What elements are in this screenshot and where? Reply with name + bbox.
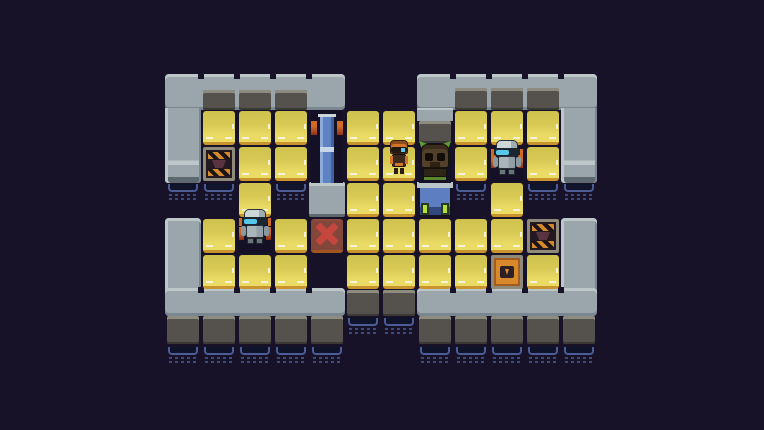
tile-floor — [275, 111, 307, 145]
tile-highlight — [441, 245, 448, 247]
water-cup — [312, 347, 342, 355]
platform-notch — [234, 73, 240, 79]
water-dots — [277, 357, 305, 359]
tile-floor — [527, 111, 559, 145]
tile-highlight — [304, 232, 306, 237]
water-cup — [276, 184, 306, 192]
platform-notch — [198, 73, 204, 79]
water-dots — [565, 194, 593, 196]
tile-floor — [347, 219, 379, 253]
tile-highlight — [242, 137, 249, 139]
water-dots — [529, 357, 557, 359]
tile-highlight — [458, 173, 465, 175]
tile-highlight — [520, 232, 522, 237]
water-dots — [169, 361, 197, 363]
game-stage[interactable] — [0, 0, 764, 430]
tile-highlight — [405, 281, 412, 283]
door-light-band — [320, 147, 334, 152]
gray-robot-bottom — [239, 207, 271, 245]
tile-highlight — [376, 268, 378, 273]
tile-floor — [347, 183, 379, 217]
water-dots — [529, 361, 557, 363]
hazard-stripe — [532, 224, 554, 231]
platform-face — [167, 316, 199, 344]
robot-leg — [394, 168, 398, 174]
tile-highlight — [549, 137, 556, 139]
platform-face — [527, 88, 559, 110]
robot-visor-glow — [244, 219, 257, 224]
tile-highlight — [530, 173, 537, 175]
robot-shoulder — [264, 226, 269, 236]
tile-highlight — [405, 209, 412, 211]
tile-floor — [383, 219, 415, 253]
blue-door — [311, 110, 343, 183]
water-cup — [492, 347, 522, 355]
water-dots — [241, 361, 269, 363]
platform-face — [563, 316, 595, 344]
water-dots — [421, 361, 449, 363]
water-decoration — [420, 347, 450, 363]
robot-arm — [390, 156, 393, 164]
tile-highlight — [261, 137, 268, 139]
tile-highlight — [386, 245, 393, 247]
tile-floor — [239, 255, 271, 289]
tile-highlight — [297, 137, 304, 139]
creature-body — [423, 168, 447, 177]
tile-highlight — [225, 137, 232, 139]
bottom-right-wall — [561, 218, 597, 292]
robot-eye-glow — [401, 148, 405, 152]
water-dots — [565, 361, 593, 363]
water-cup — [420, 347, 450, 355]
water-dots — [277, 194, 305, 196]
tile-highlight — [458, 281, 465, 283]
tile-highlight — [376, 196, 378, 201]
tile-highlight — [556, 124, 558, 129]
water-decoration — [204, 184, 234, 200]
water-dots — [493, 361, 521, 363]
tile-highlight — [556, 268, 558, 273]
tile-dock — [417, 182, 453, 217]
platform-face — [527, 316, 559, 344]
water-dots — [241, 357, 269, 359]
platform-face — [347, 290, 379, 316]
water-decoration — [384, 318, 414, 334]
tile-highlight — [278, 137, 285, 139]
robot-body — [246, 225, 264, 238]
tile-highlight — [448, 268, 450, 273]
water-dots — [169, 198, 197, 200]
tile-highlight — [242, 173, 249, 175]
tile-floor — [275, 255, 307, 289]
platform-notch — [558, 73, 564, 79]
tile-highlight — [350, 209, 357, 211]
door-marker — [337, 121, 343, 135]
orange-robot — [388, 139, 410, 176]
tile-highlight — [549, 173, 556, 175]
water-decoration — [204, 347, 234, 363]
tile-highlight — [412, 268, 414, 273]
tile-highlight — [494, 245, 501, 247]
water-dots — [169, 194, 197, 196]
tile-floor — [203, 219, 235, 253]
tile-highlight — [225, 281, 232, 283]
tile-highlight — [206, 245, 213, 247]
robot-ear — [520, 149, 523, 157]
tile-highlight — [261, 281, 268, 283]
tile-highlight — [386, 281, 393, 283]
water-cup — [456, 347, 486, 355]
robot-leg — [499, 169, 506, 175]
water-decoration — [312, 347, 342, 363]
tile-highlight — [268, 160, 270, 165]
platform-notch — [486, 73, 492, 79]
tile-highlight — [350, 137, 357, 139]
water-dots — [169, 357, 197, 359]
tile-floor — [491, 219, 523, 253]
right-inner-wall-stub — [417, 108, 453, 121]
tile-floor — [203, 111, 235, 145]
crate-contents — [212, 160, 226, 168]
water-decoration — [276, 347, 306, 363]
platform-notch — [450, 73, 456, 79]
gray-robot-top — [491, 138, 523, 176]
tile-highlight — [422, 281, 429, 283]
tile-highlight — [441, 281, 448, 283]
water-decoration — [168, 347, 198, 363]
tile-highlight — [297, 245, 304, 247]
tile-target-x — [311, 219, 343, 253]
door-cap-highlight — [318, 114, 336, 117]
platform-notch — [306, 73, 312, 79]
platform-face — [239, 90, 271, 110]
water-cup — [348, 318, 378, 326]
robot-leg — [256, 238, 263, 244]
tile-highlight — [297, 173, 304, 175]
water-decoration — [564, 347, 594, 363]
water-decoration — [456, 347, 486, 363]
water-cup — [204, 184, 234, 192]
tile-highlight — [232, 268, 234, 273]
tile-highlight — [297, 281, 304, 283]
tile-door-cap — [309, 182, 345, 217]
platform-face — [455, 88, 487, 110]
tile-highlight — [448, 232, 450, 237]
water-cup — [564, 347, 594, 355]
hazard-stripe — [532, 241, 554, 248]
tile-highlight — [268, 124, 270, 129]
platform-face — [239, 316, 271, 344]
water-dots — [205, 357, 233, 359]
tile-floor — [455, 147, 487, 181]
robot-leg — [400, 168, 404, 174]
tile-crate-hazard — [527, 219, 559, 253]
tile-floor — [383, 183, 415, 217]
tile-floor — [275, 219, 307, 253]
platform-face — [275, 316, 307, 344]
tile-highlight — [261, 173, 268, 175]
tile-highlight — [242, 281, 249, 283]
tile-highlight — [412, 232, 414, 237]
robot-body — [498, 156, 516, 169]
water-decoration — [456, 184, 486, 200]
tile-highlight — [477, 137, 484, 139]
tile-floor — [419, 219, 451, 253]
tile-highlight — [412, 160, 414, 165]
water-dots — [565, 357, 593, 359]
water-decoration — [348, 318, 378, 334]
tile-highlight — [477, 173, 484, 175]
water-dots — [421, 357, 449, 359]
water-cup — [168, 184, 198, 192]
water-cup — [204, 347, 234, 355]
tile-highlight — [549, 281, 556, 283]
tile-highlight — [206, 281, 213, 283]
water-dots — [385, 332, 413, 334]
left-wall — [165, 108, 201, 183]
creature-feet — [424, 177, 446, 180]
tile-floor — [347, 111, 379, 145]
water-decoration — [240, 347, 270, 363]
bottom-left-wall — [165, 218, 201, 292]
robot-ear — [268, 218, 271, 226]
tile-floor — [455, 255, 487, 289]
tile-highlight — [376, 124, 378, 129]
tile-floor — [527, 255, 559, 289]
tile-highlight — [494, 209, 501, 211]
water-dots — [313, 361, 341, 363]
tile-highlight — [477, 245, 484, 247]
water-dots — [457, 357, 485, 359]
tile-highlight — [268, 196, 270, 201]
water-cup — [456, 184, 486, 192]
water-dots — [385, 328, 413, 330]
robot-leg — [247, 238, 254, 244]
tile-floor — [419, 255, 451, 289]
water-decoration — [528, 184, 558, 200]
hazard-stripe — [208, 169, 230, 176]
tile-highlight — [458, 137, 465, 139]
robot-arm — [405, 156, 408, 164]
platform-notch — [270, 73, 276, 79]
robot-shoulder — [516, 157, 521, 167]
water-dots — [529, 198, 557, 200]
creature — [418, 141, 452, 181]
water-dots — [529, 194, 557, 196]
door-marker — [311, 121, 317, 135]
platform-face — [383, 290, 415, 316]
water-cup — [384, 318, 414, 326]
tile-highlight — [304, 268, 306, 273]
tile-highlight — [520, 124, 522, 129]
tile-highlight — [513, 209, 520, 211]
water-cup — [564, 184, 594, 192]
platform-notch — [522, 73, 528, 79]
tile-highlight — [278, 245, 285, 247]
creature-eye — [425, 153, 433, 161]
crate-contents — [536, 232, 550, 240]
right-wall — [561, 108, 597, 183]
tile-highlight — [412, 124, 414, 129]
water-dots — [349, 328, 377, 330]
tile-highlight — [369, 281, 376, 283]
tile-floor — [203, 255, 235, 289]
tile-floor — [527, 147, 559, 181]
tile-highlight — [484, 160, 486, 165]
tile-highlight — [369, 173, 376, 175]
tile-highlight — [369, 209, 376, 211]
water-dots — [277, 361, 305, 363]
water-dots — [205, 361, 233, 363]
water-cup — [168, 347, 198, 355]
tile-highlight — [225, 245, 232, 247]
platform-face — [491, 316, 523, 344]
platform-face — [419, 121, 451, 143]
tile-highlight — [278, 281, 285, 283]
water-dots — [205, 194, 233, 196]
water-decoration — [564, 184, 594, 200]
water-cup — [276, 347, 306, 355]
tile-highlight — [376, 160, 378, 165]
water-dots — [565, 198, 593, 200]
water-dots — [457, 194, 485, 196]
tile-highlight — [369, 245, 376, 247]
tile-highlight — [422, 245, 429, 247]
water-dots — [457, 198, 485, 200]
platform-face — [455, 316, 487, 344]
tile-highlight — [268, 268, 270, 273]
tile-highlight — [278, 173, 285, 175]
bottom-left-platform — [165, 288, 345, 316]
tile-highlight — [350, 245, 357, 247]
dock-lamp — [421, 203, 429, 215]
tile-highlight — [520, 196, 522, 201]
tile-highlight — [405, 245, 412, 247]
tile-floor — [347, 255, 379, 289]
tile-highlight — [369, 137, 376, 139]
robot-belt — [395, 163, 403, 166]
platform-face — [311, 316, 343, 344]
water-decoration — [168, 184, 198, 200]
tile-crate-envelope — [491, 255, 523, 289]
water-cup — [528, 347, 558, 355]
robot-visor-glow — [496, 150, 509, 155]
tile-highlight — [530, 137, 537, 139]
water-decoration — [276, 184, 306, 200]
creature-eye — [437, 153, 445, 161]
tile-floor — [455, 111, 487, 145]
platform-face — [203, 90, 235, 110]
water-decoration — [528, 347, 558, 363]
tile-highlight — [350, 281, 357, 283]
tile-highlight — [530, 281, 537, 283]
tile-highlight — [556, 160, 558, 165]
water-cup — [528, 184, 558, 192]
water-dots — [277, 198, 305, 200]
tile-floor — [239, 111, 271, 145]
tile-highlight — [484, 124, 486, 129]
tile-highlight — [350, 173, 357, 175]
water-dots — [493, 357, 521, 359]
platform-notch — [306, 287, 312, 293]
tile-floor — [275, 147, 307, 181]
water-decoration — [492, 347, 522, 363]
tile-crate-hazard — [203, 147, 235, 181]
tile-highlight — [376, 232, 378, 237]
robot-leg — [508, 169, 515, 175]
tile-highlight — [484, 268, 486, 273]
platform-face — [203, 316, 235, 344]
water-dots — [205, 198, 233, 200]
tile-highlight — [232, 124, 234, 129]
tile-highlight — [206, 137, 213, 139]
platform-face — [491, 88, 523, 110]
water-cup — [240, 347, 270, 355]
tile-floor — [383, 255, 415, 289]
tile-floor — [491, 183, 523, 217]
tile-highlight — [386, 209, 393, 211]
tile-highlight — [458, 245, 465, 247]
water-dots — [349, 332, 377, 334]
creature-snout — [430, 162, 440, 167]
tile-floor — [347, 147, 379, 181]
tile-highlight — [232, 232, 234, 237]
platform-face — [275, 90, 307, 110]
tile-floor — [455, 219, 487, 253]
tile-highlight — [412, 196, 414, 201]
tile-highlight — [513, 245, 520, 247]
tile-highlight — [477, 281, 484, 283]
tile-highlight — [304, 124, 306, 129]
platform-face — [419, 316, 451, 344]
water-dots — [457, 361, 485, 363]
tile-highlight — [304, 160, 306, 165]
tile-floor — [239, 147, 271, 181]
bottom-right-platform — [417, 288, 597, 316]
water-dots — [313, 357, 341, 359]
tile-highlight — [484, 232, 486, 237]
platform-notch — [558, 287, 564, 293]
hazard-stripe — [208, 152, 230, 159]
dock-lamp — [441, 203, 449, 215]
